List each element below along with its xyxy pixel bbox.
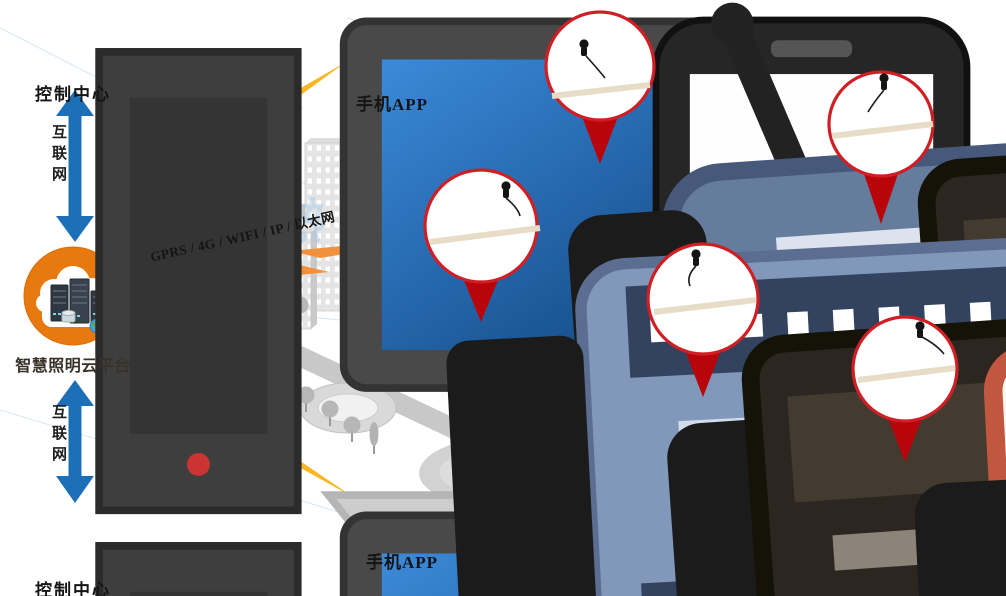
tree bbox=[370, 422, 379, 454]
mobile-app-label-top: 手机APP bbox=[342, 90, 442, 115]
architecture-diagram-canvas: 地大热能 DI DA RE NENG 地大热能 DI DA RE NENG 地大… bbox=[0, 0, 1006, 596]
smart-lighting-iot-architecture-diagram: 地大热能 DI DA RE NENG 地大热能 DI DA RE NENG 地大… bbox=[0, 0, 1006, 596]
mobile-app-label-bottom: 手机APP bbox=[352, 548, 452, 573]
control-center-label-bottom: 控制中心 bbox=[18, 576, 128, 596]
internet-label-bottom: 互联网 bbox=[48, 404, 69, 467]
internet-label-top: 互联网 bbox=[48, 124, 69, 187]
control-center-label-top: 控制中心 bbox=[18, 80, 128, 105]
callout-circle bbox=[546, 12, 654, 120]
tree bbox=[344, 417, 361, 443]
callout-circle bbox=[425, 170, 537, 282]
cloud-platform-label: 智慧照明云平台 bbox=[2, 352, 144, 376]
